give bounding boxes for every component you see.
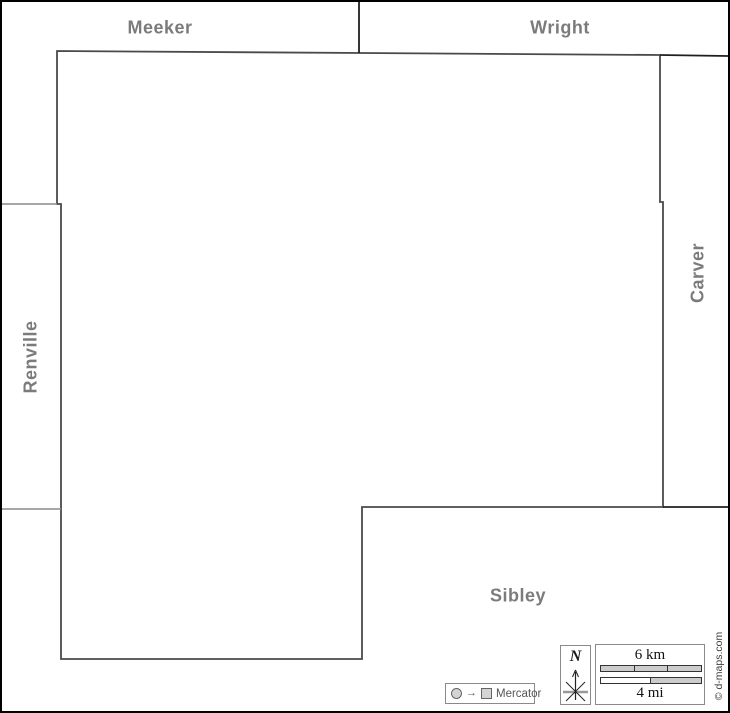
label-sibley: Sibley (490, 586, 546, 607)
label-renville: Renville (21, 320, 42, 393)
arrow-right-icon: → (466, 688, 477, 699)
north-arrow-box: N (560, 645, 591, 705)
km-bar-tick (667, 666, 668, 671)
km-bar-tick (634, 666, 635, 671)
county-map-canvas: Meeker Wright Renville Carver Sibley N 6… (0, 0, 730, 713)
wright-carver-divider (660, 55, 728, 56)
scale-mi-bar (600, 677, 702, 684)
map-boundaries-svg (2, 2, 728, 711)
scale-km-bar (600, 665, 702, 672)
compass-star-icon (561, 665, 590, 705)
scale-mi-label: 4 mi (636, 685, 663, 702)
north-label: N (570, 648, 582, 666)
projection-badge: → Mercator (445, 683, 535, 704)
sphere-icon (451, 688, 462, 699)
label-meeker: Meeker (127, 18, 192, 39)
county-outline (57, 51, 663, 659)
plane-icon (481, 688, 492, 699)
mi-bar-segment (650, 678, 701, 683)
scale-km-label: 6 km (635, 647, 665, 664)
projection-name: Mercator (496, 688, 541, 700)
label-wright: Wright (530, 18, 590, 39)
label-carver: Carver (688, 243, 709, 303)
scale-bar-box: 6 km 4 mi (595, 644, 705, 705)
dmaps-credit: © d-maps.com (713, 632, 725, 700)
